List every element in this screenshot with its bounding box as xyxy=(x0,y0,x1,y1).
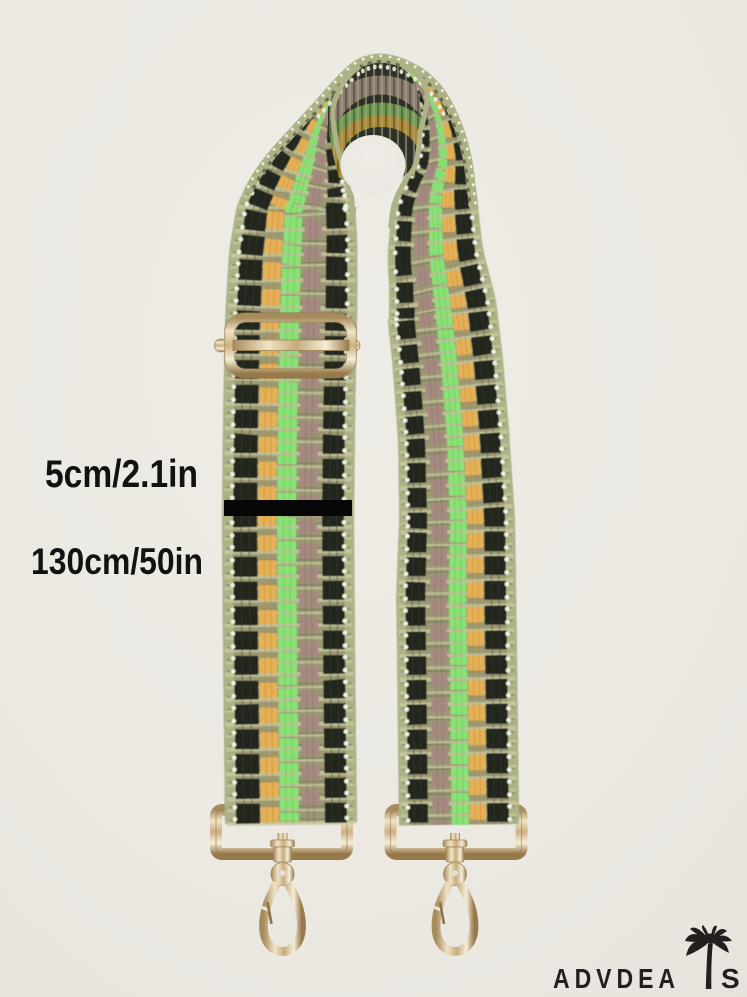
svg-text:S: S xyxy=(721,963,740,994)
svg-text:ADVDEA: ADVDEA xyxy=(553,963,680,994)
svg-text:5cm/2.1in: 5cm/2.1in xyxy=(45,453,198,496)
svg-text:130cm/50in: 130cm/50in xyxy=(31,541,203,582)
